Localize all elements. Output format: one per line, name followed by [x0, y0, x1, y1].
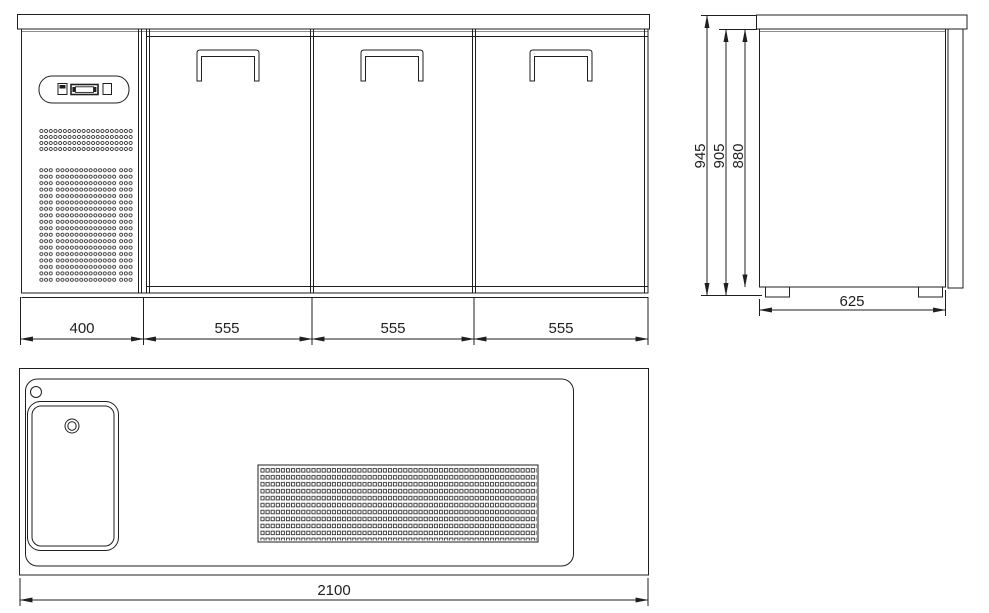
- sink-rim-inner: [32, 406, 114, 546]
- power-switch-rocker: [60, 85, 66, 89]
- top-width-dimension: 2100: [20, 578, 648, 606]
- drain-hole-outer: [65, 419, 79, 433]
- technical-drawing-page: 400 555 555 555 945 905 880: [0, 0, 989, 613]
- display-window: [76, 87, 94, 93]
- side-height-dimensions: 945 905 880: [692, 16, 762, 296]
- dimension-label: 2100: [317, 582, 350, 599]
- dimension-label: 555: [214, 320, 239, 337]
- side-elevation-view: 945 905 880 625: [692, 15, 967, 316]
- dimension-label: 905: [711, 143, 728, 168]
- dimension-label: 400: [69, 320, 94, 337]
- ventilation-grille-lower-middle: [55, 167, 116, 283]
- cabinet-body-side: [760, 29, 946, 287]
- worktop-side: [757, 15, 968, 29]
- door-3: [530, 50, 592, 81]
- control-panel: [39, 76, 129, 103]
- ventilation-grille-upper: [39, 128, 133, 152]
- ventilation-grille-lower-right: [119, 167, 133, 283]
- dimension-label: 880: [730, 143, 747, 168]
- rear-foot: [919, 287, 943, 297]
- dimension-label: 945: [692, 143, 709, 168]
- door-handle: [197, 50, 259, 81]
- drawing-sheet: 400 555 555 555 945 905 880: [0, 0, 989, 613]
- dimension-label: 555: [548, 320, 573, 337]
- door-1: [197, 50, 259, 81]
- worktop-front: [18, 15, 650, 30]
- dimension-label: 625: [839, 293, 864, 310]
- ventilation-grille-lower-left: [39, 167, 53, 283]
- display-button-right: [94, 87, 97, 92]
- sink-rim-outer: [28, 402, 119, 551]
- dimension-label: 555: [380, 320, 405, 337]
- compressor-compartment: [39, 29, 142, 293]
- front-width-dimensions: 400 555 555 555: [21, 297, 649, 345]
- grille-holes: [260, 467, 537, 541]
- sink: [28, 402, 119, 551]
- front-elevation-view: 400 555 555 555: [18, 15, 650, 346]
- tap-hole: [31, 387, 42, 398]
- drip-tray-grille: [258, 465, 538, 542]
- display-button-left: [72, 87, 75, 92]
- front-foot: [766, 287, 790, 297]
- plan-top-view: 2100: [20, 369, 649, 607]
- rear-panel: [948, 29, 963, 288]
- door-handle: [530, 50, 592, 81]
- door-2: [361, 50, 423, 81]
- light-switch: [103, 84, 112, 95]
- side-depth-dimension: 625: [760, 290, 946, 316]
- door-handle: [361, 50, 423, 81]
- door-frames: [147, 29, 649, 293]
- drain-hole-inner: [68, 422, 76, 430]
